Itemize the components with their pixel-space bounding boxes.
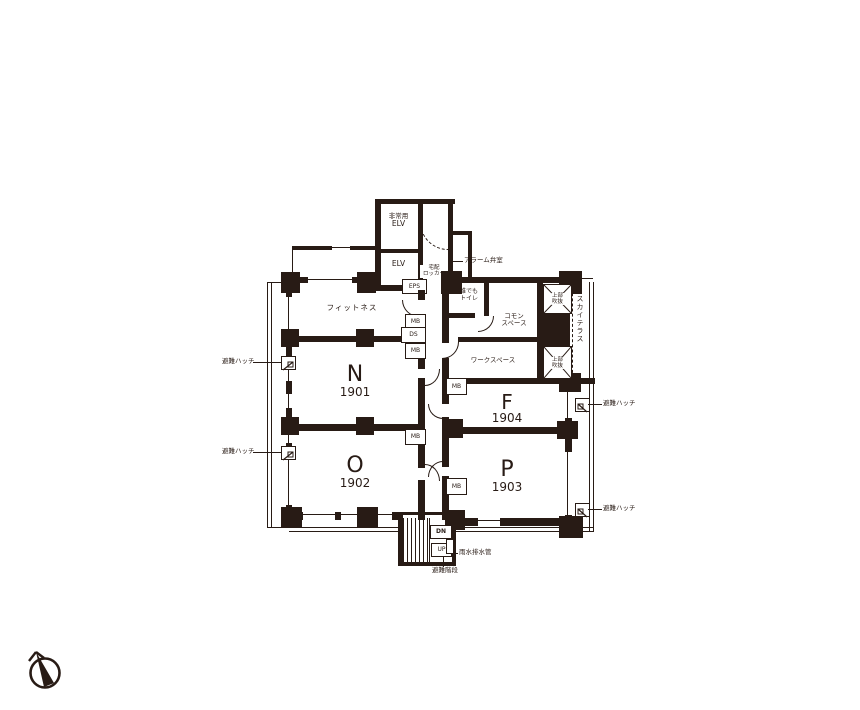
evacuation-hatch-label: 避難ハッチ (603, 400, 636, 407)
room-p-letter: P (467, 459, 547, 481)
void-above-shaft: 上部吹抜 (543, 284, 572, 314)
window (286, 297, 292, 333)
door-swing-arc (425, 369, 440, 386)
column (559, 516, 583, 538)
mb-box: MB (446, 478, 467, 495)
door-opening (418, 468, 425, 480)
column (557, 421, 578, 439)
common-line2: スペース (501, 319, 526, 327)
evacuation-hatch (281, 356, 296, 370)
sky-terrace-label: スカイテラス (576, 295, 584, 365)
mb-label: MB (411, 319, 420, 325)
evacuation-hatch-label: 避難ハッチ (222, 358, 255, 365)
rain-water-drain-label: 雨水排水管 (459, 549, 492, 556)
door-swing-arc (428, 404, 443, 419)
drain-pipe (446, 539, 454, 554)
mb-label: MB (411, 434, 420, 440)
wall (398, 512, 456, 515)
elevator-label: ELV (378, 260, 419, 269)
wall (377, 249, 421, 253)
evacuation-hatch (575, 503, 590, 517)
wall (292, 246, 332, 250)
evacuation-hatch (575, 398, 590, 412)
balcony-parapet (593, 282, 594, 532)
stair-treads (403, 518, 429, 562)
room-n: N 1901 (315, 364, 395, 399)
column (356, 417, 374, 435)
accessible-toilet-label: 誰でも トイレ (452, 289, 486, 303)
window (286, 458, 292, 505)
leader-line (253, 452, 281, 453)
window (565, 452, 572, 515)
column (281, 507, 302, 528)
window (565, 392, 572, 418)
room-p: P 1903 (467, 459, 547, 494)
column (357, 507, 378, 528)
ds-box: DS (401, 327, 426, 343)
stairs-down-label: DN (436, 529, 446, 535)
wall (443, 277, 572, 283)
mb-label: MB (452, 384, 461, 390)
evacuation-stairs-label: 避難階段 (426, 567, 464, 574)
workspace-label: ワークスペース (466, 357, 520, 364)
fitness-label: フィットネス (324, 304, 380, 313)
door-opening (418, 369, 425, 378)
balcony-parapet (267, 282, 268, 528)
floor-plan-canvas: 非常用 ELV ELV 宅配 ロッカー EPS アラーム弁室 (0, 0, 860, 710)
room-o-letter: O (315, 455, 395, 477)
column (357, 272, 376, 293)
room-o-number: 1902 (315, 477, 395, 490)
void-above-shaft: 上部吹抜 (543, 346, 572, 379)
window (308, 277, 352, 283)
door-opening (442, 467, 449, 476)
room-f: F 1904 (467, 393, 547, 425)
alarm-valve-room-label: アラーム弁室 (464, 257, 503, 264)
column (281, 417, 299, 435)
north-arrow-icon (24, 646, 68, 694)
mb-box: MB (405, 429, 426, 445)
wall (449, 427, 567, 434)
window (478, 518, 500, 526)
leader-line (588, 404, 602, 405)
column (356, 329, 374, 347)
wall (449, 313, 475, 318)
balcony-parapet (271, 282, 272, 528)
emergency-elevator-line2: ELV (392, 219, 405, 228)
room-n-letter: N (315, 364, 395, 386)
column (443, 419, 463, 438)
room-f-letter: F (467, 393, 547, 412)
evacuation-hatch-label: 避難ハッチ (603, 505, 636, 512)
window (303, 512, 335, 520)
room-f-number: 1904 (467, 412, 547, 425)
room-n-number: 1901 (315, 386, 395, 399)
mb-label: MB (411, 348, 420, 354)
balcony-parapet (289, 531, 398, 532)
stairs-up-label: UP (437, 547, 445, 553)
terrace-boundary-dashed (572, 283, 573, 378)
stairs-down-box: DN (430, 525, 452, 539)
void-line2: 吹抜 (552, 363, 563, 369)
door-swing-arc (428, 461, 443, 477)
wall (543, 312, 570, 346)
toilet-line2: トイレ (460, 295, 478, 302)
mb-box: MB (405, 343, 426, 359)
evacuation-hatch-label: 避難ハッチ (222, 448, 255, 455)
column (281, 272, 300, 293)
mb-box: MB (446, 378, 467, 395)
leader-line (452, 553, 458, 554)
mb-label: MB (452, 484, 461, 490)
evacuation-hatch (281, 446, 296, 460)
door-opening (442, 404, 449, 417)
door-swing-arc (442, 342, 459, 359)
leader-line (588, 509, 602, 510)
wall (375, 199, 455, 204)
void-line2: 吹抜 (552, 299, 563, 305)
column (281, 329, 299, 347)
leader-line (253, 362, 281, 363)
emergency-elevator-label: 非常用 ELV (378, 213, 419, 229)
void-above-label: 上部吹抜 (551, 293, 564, 305)
wall (449, 518, 572, 526)
room-o: O 1902 (315, 455, 395, 490)
ds-label: DS (409, 332, 417, 338)
wall (350, 246, 377, 250)
eps-label: EPS (409, 284, 420, 290)
room-p-number: 1903 (467, 481, 547, 494)
leader-line (451, 261, 463, 262)
void-above-label: 上部吹抜 (551, 356, 564, 368)
window (286, 394, 292, 408)
door-swing-arc (420, 222, 448, 250)
wall (458, 337, 538, 342)
common-space-label: コモン スペース (494, 313, 534, 328)
door-swing-arc (478, 316, 494, 332)
